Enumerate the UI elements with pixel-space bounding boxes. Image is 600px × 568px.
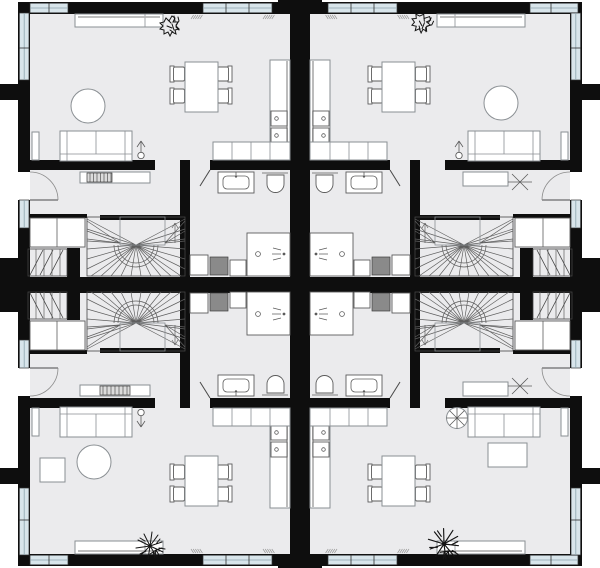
- window: [571, 200, 581, 228]
- window: [30, 3, 68, 13]
- window: [30, 555, 68, 565]
- floor-plan-canvas: Floor plan of four mirrored dwelling uni…: [0, 0, 600, 568]
- window: [530, 3, 578, 13]
- rectangular-coffee-table: [488, 443, 527, 467]
- window: [203, 555, 272, 565]
- window: [328, 3, 397, 13]
- window: [571, 13, 581, 80]
- round-coffee-table: [77, 445, 111, 479]
- window: [571, 488, 581, 555]
- hall-bench: [463, 382, 508, 396]
- floor-plan: Floor plan of four mirrored dwelling uni…: [0, 0, 600, 568]
- square-side-table: [40, 458, 65, 482]
- window: [530, 555, 578, 565]
- party-wall-horizontal: [0, 277, 600, 293]
- window: [19, 13, 29, 80]
- window: [328, 555, 397, 565]
- window: [19, 200, 29, 228]
- window: [203, 3, 272, 13]
- window: [19, 488, 29, 555]
- hall-bench: [463, 172, 508, 186]
- window: [19, 340, 29, 368]
- round-coffee-table: [71, 89, 105, 123]
- round-pedestal-table: [447, 408, 468, 429]
- window: [571, 340, 581, 368]
- radiator: [87, 173, 112, 182]
- round-coffee-table: [484, 86, 518, 120]
